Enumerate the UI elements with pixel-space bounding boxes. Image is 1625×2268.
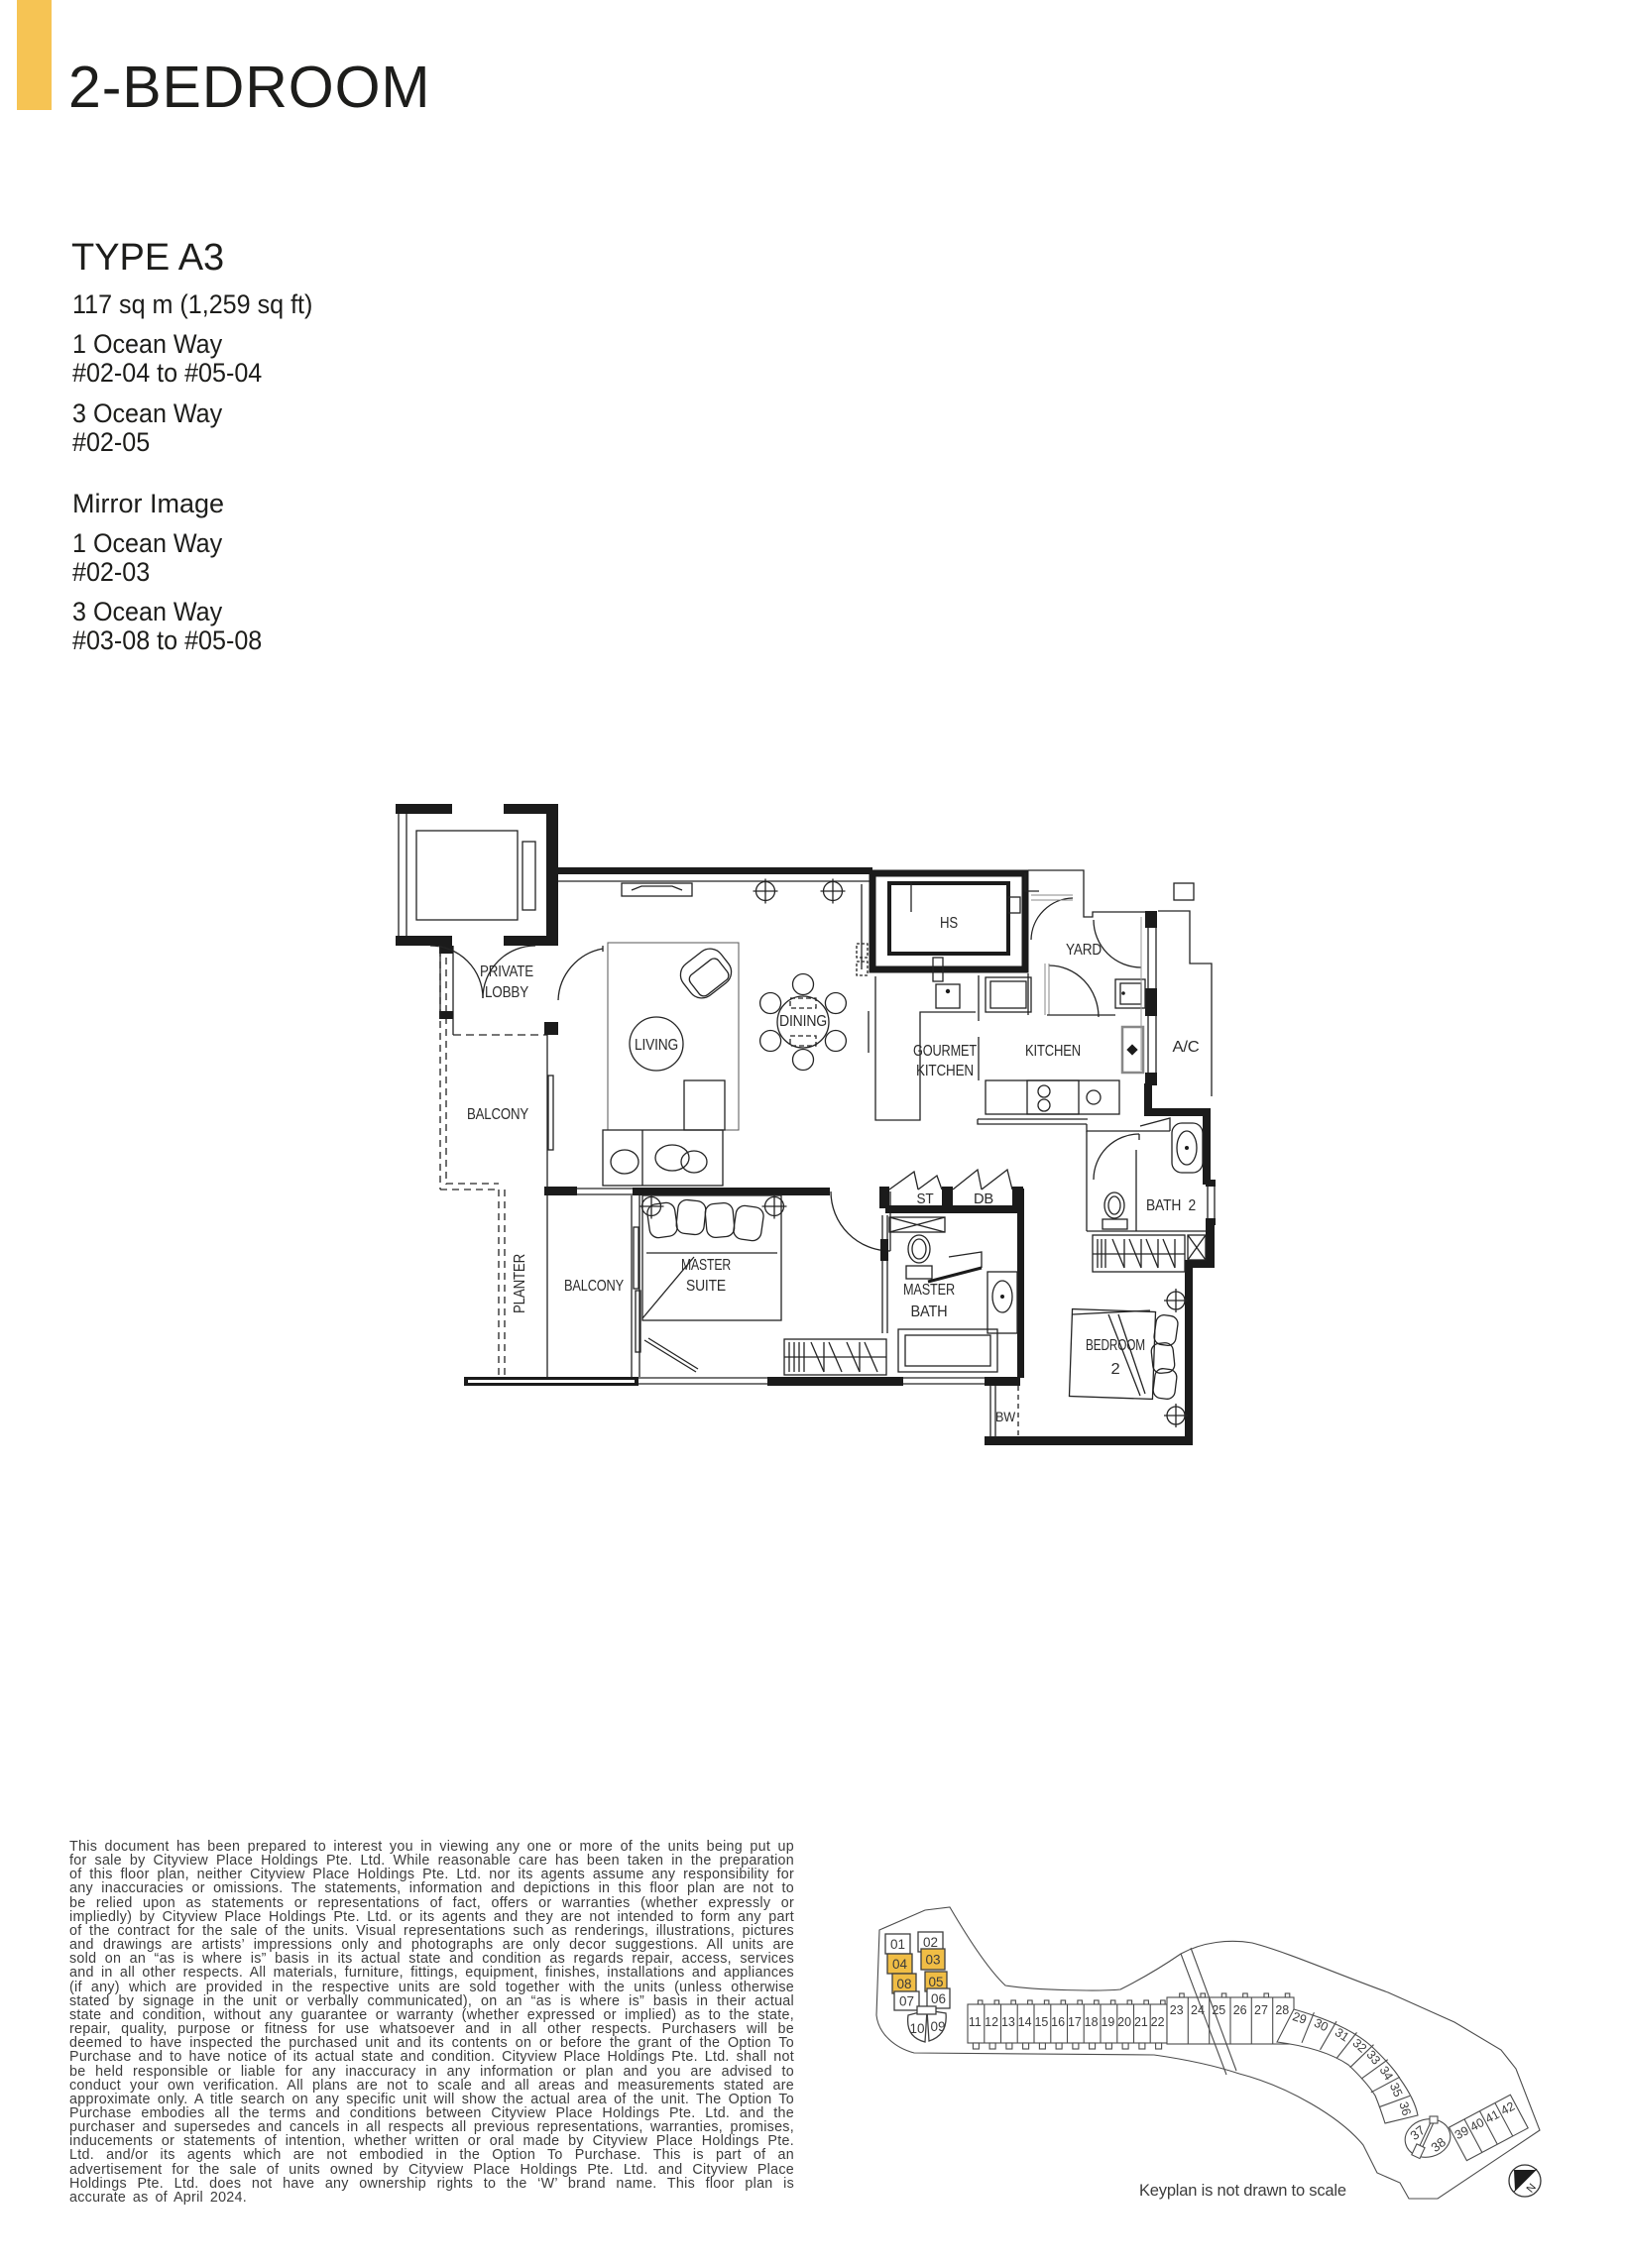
svg-text:07: 07 [899,1994,914,2009]
svg-text:01: 01 [890,1937,905,1952]
svg-text:16: 16 [1051,2015,1065,2029]
svg-text:11: 11 [969,2015,982,2029]
svg-text:A/C: A/C [1173,1039,1200,1056]
svg-text:06: 06 [931,1991,946,2006]
svg-text:LOBBY: LOBBY [485,984,528,1001]
svg-text:MASTER: MASTER [681,1257,731,1274]
svg-text:05: 05 [928,1975,943,1989]
svg-text:15: 15 [1034,2015,1048,2029]
svg-text:BALCONY: BALCONY [467,1106,528,1123]
svg-text:LIVING: LIVING [635,1037,678,1054]
svg-text:09: 09 [930,2019,945,2034]
svg-text:22: 22 [1151,2015,1165,2029]
svg-text:YARD: YARD [1066,942,1102,959]
svg-text:26: 26 [1233,2003,1247,2017]
svg-text:BATH 2: BATH 2 [1146,1197,1196,1214]
svg-text:21: 21 [1134,2015,1148,2029]
svg-text:ST: ST [917,1191,934,1207]
svg-text:27: 27 [1254,2003,1268,2017]
svg-text:PRIVATE: PRIVATE [480,964,533,980]
svg-text:BALCONY: BALCONY [564,1278,624,1295]
svg-text:BW: BW [995,1409,1016,1424]
svg-text:BEDROOM: BEDROOM [1086,1337,1145,1354]
svg-text:23: 23 [1170,2003,1184,2017]
svg-text:DB: DB [974,1191,993,1207]
svg-text:KITCHEN: KITCHEN [916,1063,974,1079]
svg-text:20: 20 [1117,2015,1131,2029]
svg-text:13: 13 [1001,2015,1015,2029]
svg-text:28: 28 [1275,2003,1289,2017]
svg-text:BATH: BATH [911,1304,948,1320]
svg-text:14: 14 [1018,2015,1032,2029]
svg-text:17: 17 [1068,2015,1082,2029]
svg-text:03: 03 [925,1953,940,1968]
svg-text:08: 08 [896,1977,911,1991]
svg-text:SUITE: SUITE [686,1278,726,1295]
svg-text:10: 10 [909,2021,924,2036]
svg-text:19: 19 [1101,2015,1114,2029]
svg-text:HS: HS [940,915,958,932]
svg-text:04: 04 [892,1957,908,1972]
svg-text:02: 02 [923,1935,938,1950]
svg-text:18: 18 [1085,2015,1099,2029]
svg-text:PLANTER: PLANTER [512,1254,528,1313]
svg-text:MASTER: MASTER [903,1282,955,1299]
svg-text:2: 2 [1111,1361,1120,1378]
svg-text:KITCHEN: KITCHEN [1025,1043,1081,1060]
svg-text:DINING: DINING [779,1013,827,1030]
svg-text:12: 12 [985,2015,998,2029]
svg-text:GOURMET: GOURMET [913,1043,977,1060]
